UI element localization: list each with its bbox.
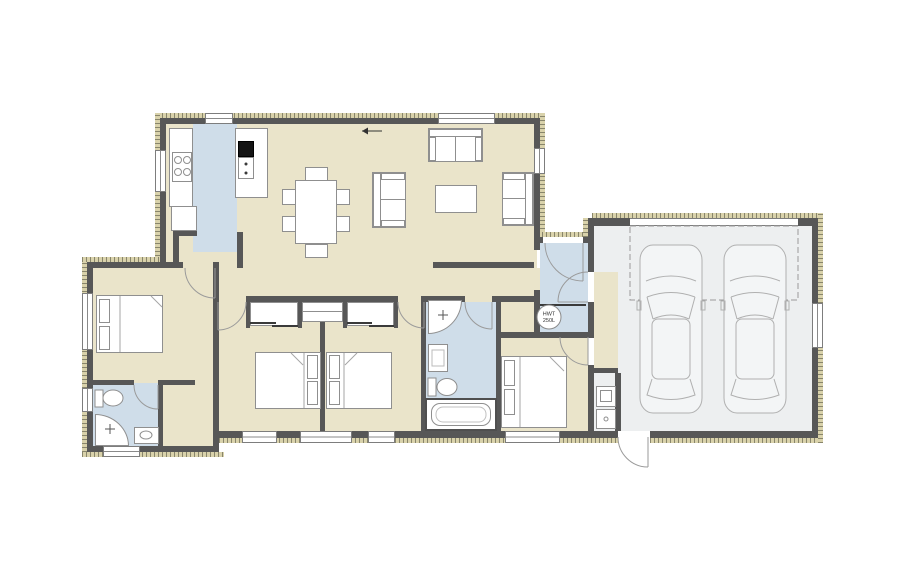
laundry-tub <box>596 409 616 429</box>
floor-garage <box>594 226 812 431</box>
wall <box>534 118 540 250</box>
sofa-back <box>525 173 533 225</box>
window <box>534 148 545 174</box>
wall <box>501 332 594 338</box>
window <box>242 431 277 443</box>
wall <box>592 218 630 226</box>
wardrobe-sliding-door <box>347 322 372 324</box>
pillow <box>99 326 110 350</box>
wall <box>87 262 93 452</box>
cladding-hatch <box>650 438 823 443</box>
wall <box>534 290 540 338</box>
sofa-arm <box>381 220 405 227</box>
cladding-hatch <box>540 113 545 237</box>
wall <box>433 262 534 268</box>
garage-door <box>630 218 798 226</box>
pillow <box>329 355 340 379</box>
wall <box>160 118 166 268</box>
dining-table <box>295 180 337 244</box>
wardrobe-shelf-line <box>302 311 343 312</box>
wall <box>215 296 218 302</box>
dining-chair <box>336 216 350 232</box>
sofa-arm <box>475 137 482 161</box>
window <box>300 431 352 443</box>
sofa-back <box>429 129 482 137</box>
window <box>82 388 93 412</box>
bathtub <box>431 403 491 426</box>
sofa-arm <box>503 173 525 180</box>
sofa-back <box>373 173 381 227</box>
pillow <box>99 299 110 323</box>
wall <box>158 380 195 385</box>
wall <box>237 232 243 268</box>
oven <box>238 157 254 179</box>
wardrobe-sliding-door <box>250 322 276 324</box>
window <box>82 293 93 350</box>
garage-entry-door-arc <box>618 437 648 467</box>
window <box>368 431 395 443</box>
pillow <box>329 381 340 405</box>
sofa-arm <box>381 173 405 180</box>
sofa-arm <box>429 137 436 161</box>
floor-garage-passage <box>594 272 618 368</box>
window <box>205 113 233 124</box>
wall <box>588 302 594 337</box>
floor-entry <box>540 243 588 332</box>
wall <box>588 218 594 272</box>
sofa-cushion-line <box>503 198 525 199</box>
dining-chair <box>305 244 328 258</box>
wall <box>87 262 166 268</box>
sofa-cushion-line <box>455 137 456 161</box>
vanity <box>428 344 448 372</box>
washing-machine-drum <box>600 390 612 402</box>
wall <box>394 302 398 328</box>
refrigerator <box>238 141 254 157</box>
wardrobe-sliding-door <box>272 325 298 327</box>
window <box>812 303 823 348</box>
window <box>103 446 140 457</box>
pillow <box>504 389 515 415</box>
window <box>505 431 560 443</box>
dining-chair <box>282 216 296 232</box>
sofa-arm <box>503 218 525 225</box>
wall <box>213 262 219 452</box>
dining-chair <box>336 189 350 205</box>
window <box>155 150 166 192</box>
closet-rail <box>540 304 586 306</box>
dining-chair <box>305 167 328 181</box>
pillow <box>504 360 515 386</box>
floor-plan: HWT 250L <box>0 0 900 565</box>
coffee-table <box>435 185 477 213</box>
floor-kitchen <box>193 122 237 252</box>
cooktop <box>172 152 192 182</box>
wall <box>166 262 183 268</box>
vanity <box>134 427 159 444</box>
wall <box>650 431 818 438</box>
wall <box>93 380 134 385</box>
sofa-cushion-line <box>381 199 405 200</box>
pillow <box>307 355 318 379</box>
dining-chair <box>282 189 296 205</box>
wardrobe-shelves <box>302 302 343 322</box>
pantry-cupboard <box>171 206 197 231</box>
window <box>438 113 495 124</box>
pillow <box>307 381 318 405</box>
wall <box>588 365 594 438</box>
wardrobe-sliding-door <box>369 325 394 327</box>
wall <box>534 237 543 243</box>
